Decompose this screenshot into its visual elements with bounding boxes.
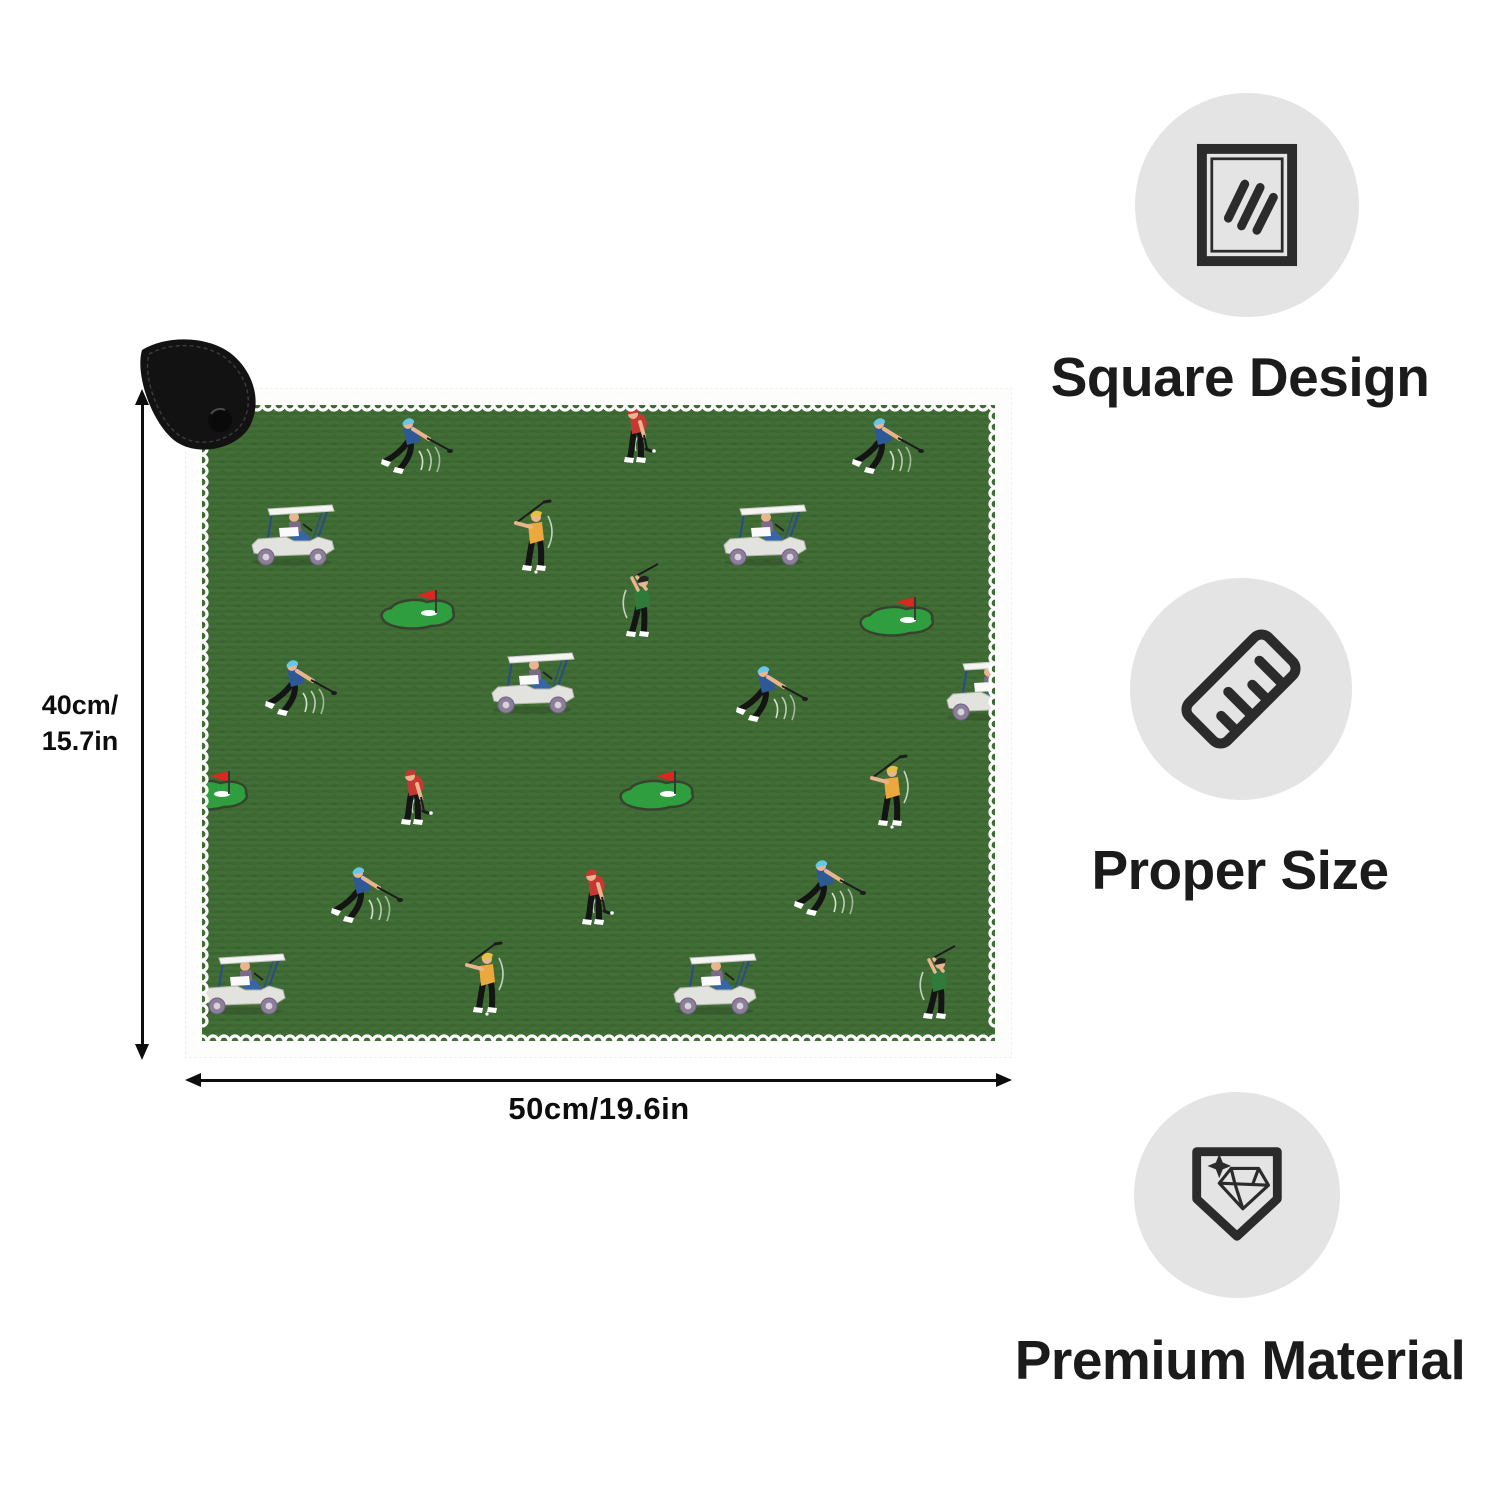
- feature-circle-premium-material: [1134, 1092, 1340, 1298]
- premium-badge-icon: [1178, 1136, 1296, 1254]
- corner-clip: [130, 334, 270, 460]
- towel-icon: [1191, 139, 1303, 271]
- golf-towel-product: [185, 388, 1012, 1058]
- feature-circle-square-design: [1135, 93, 1359, 317]
- feature-label-premium-material: Premium Material: [980, 1328, 1500, 1392]
- width-dimension-label: 50cm/19.6in: [285, 1091, 913, 1127]
- height-dimension-line2: 15.7in: [20, 724, 140, 760]
- snap-button: [208, 408, 232, 432]
- height-arrow: [141, 403, 144, 1047]
- ruler-icon: [1166, 614, 1316, 764]
- width-arrowhead-right: [996, 1073, 1012, 1087]
- height-arrowhead-bottom: [135, 1044, 149, 1060]
- feature-circle-proper-size: [1130, 578, 1352, 800]
- feature-label-square-design: Square Design: [980, 345, 1500, 409]
- width-arrowhead-left: [185, 1073, 201, 1087]
- height-dimension-line1: 40cm/: [20, 688, 140, 724]
- height-dimension-label: 40cm/ 15.7in: [20, 688, 140, 759]
- feature-label-proper-size: Proper Size: [980, 838, 1500, 902]
- width-arrow: [199, 1079, 997, 1082]
